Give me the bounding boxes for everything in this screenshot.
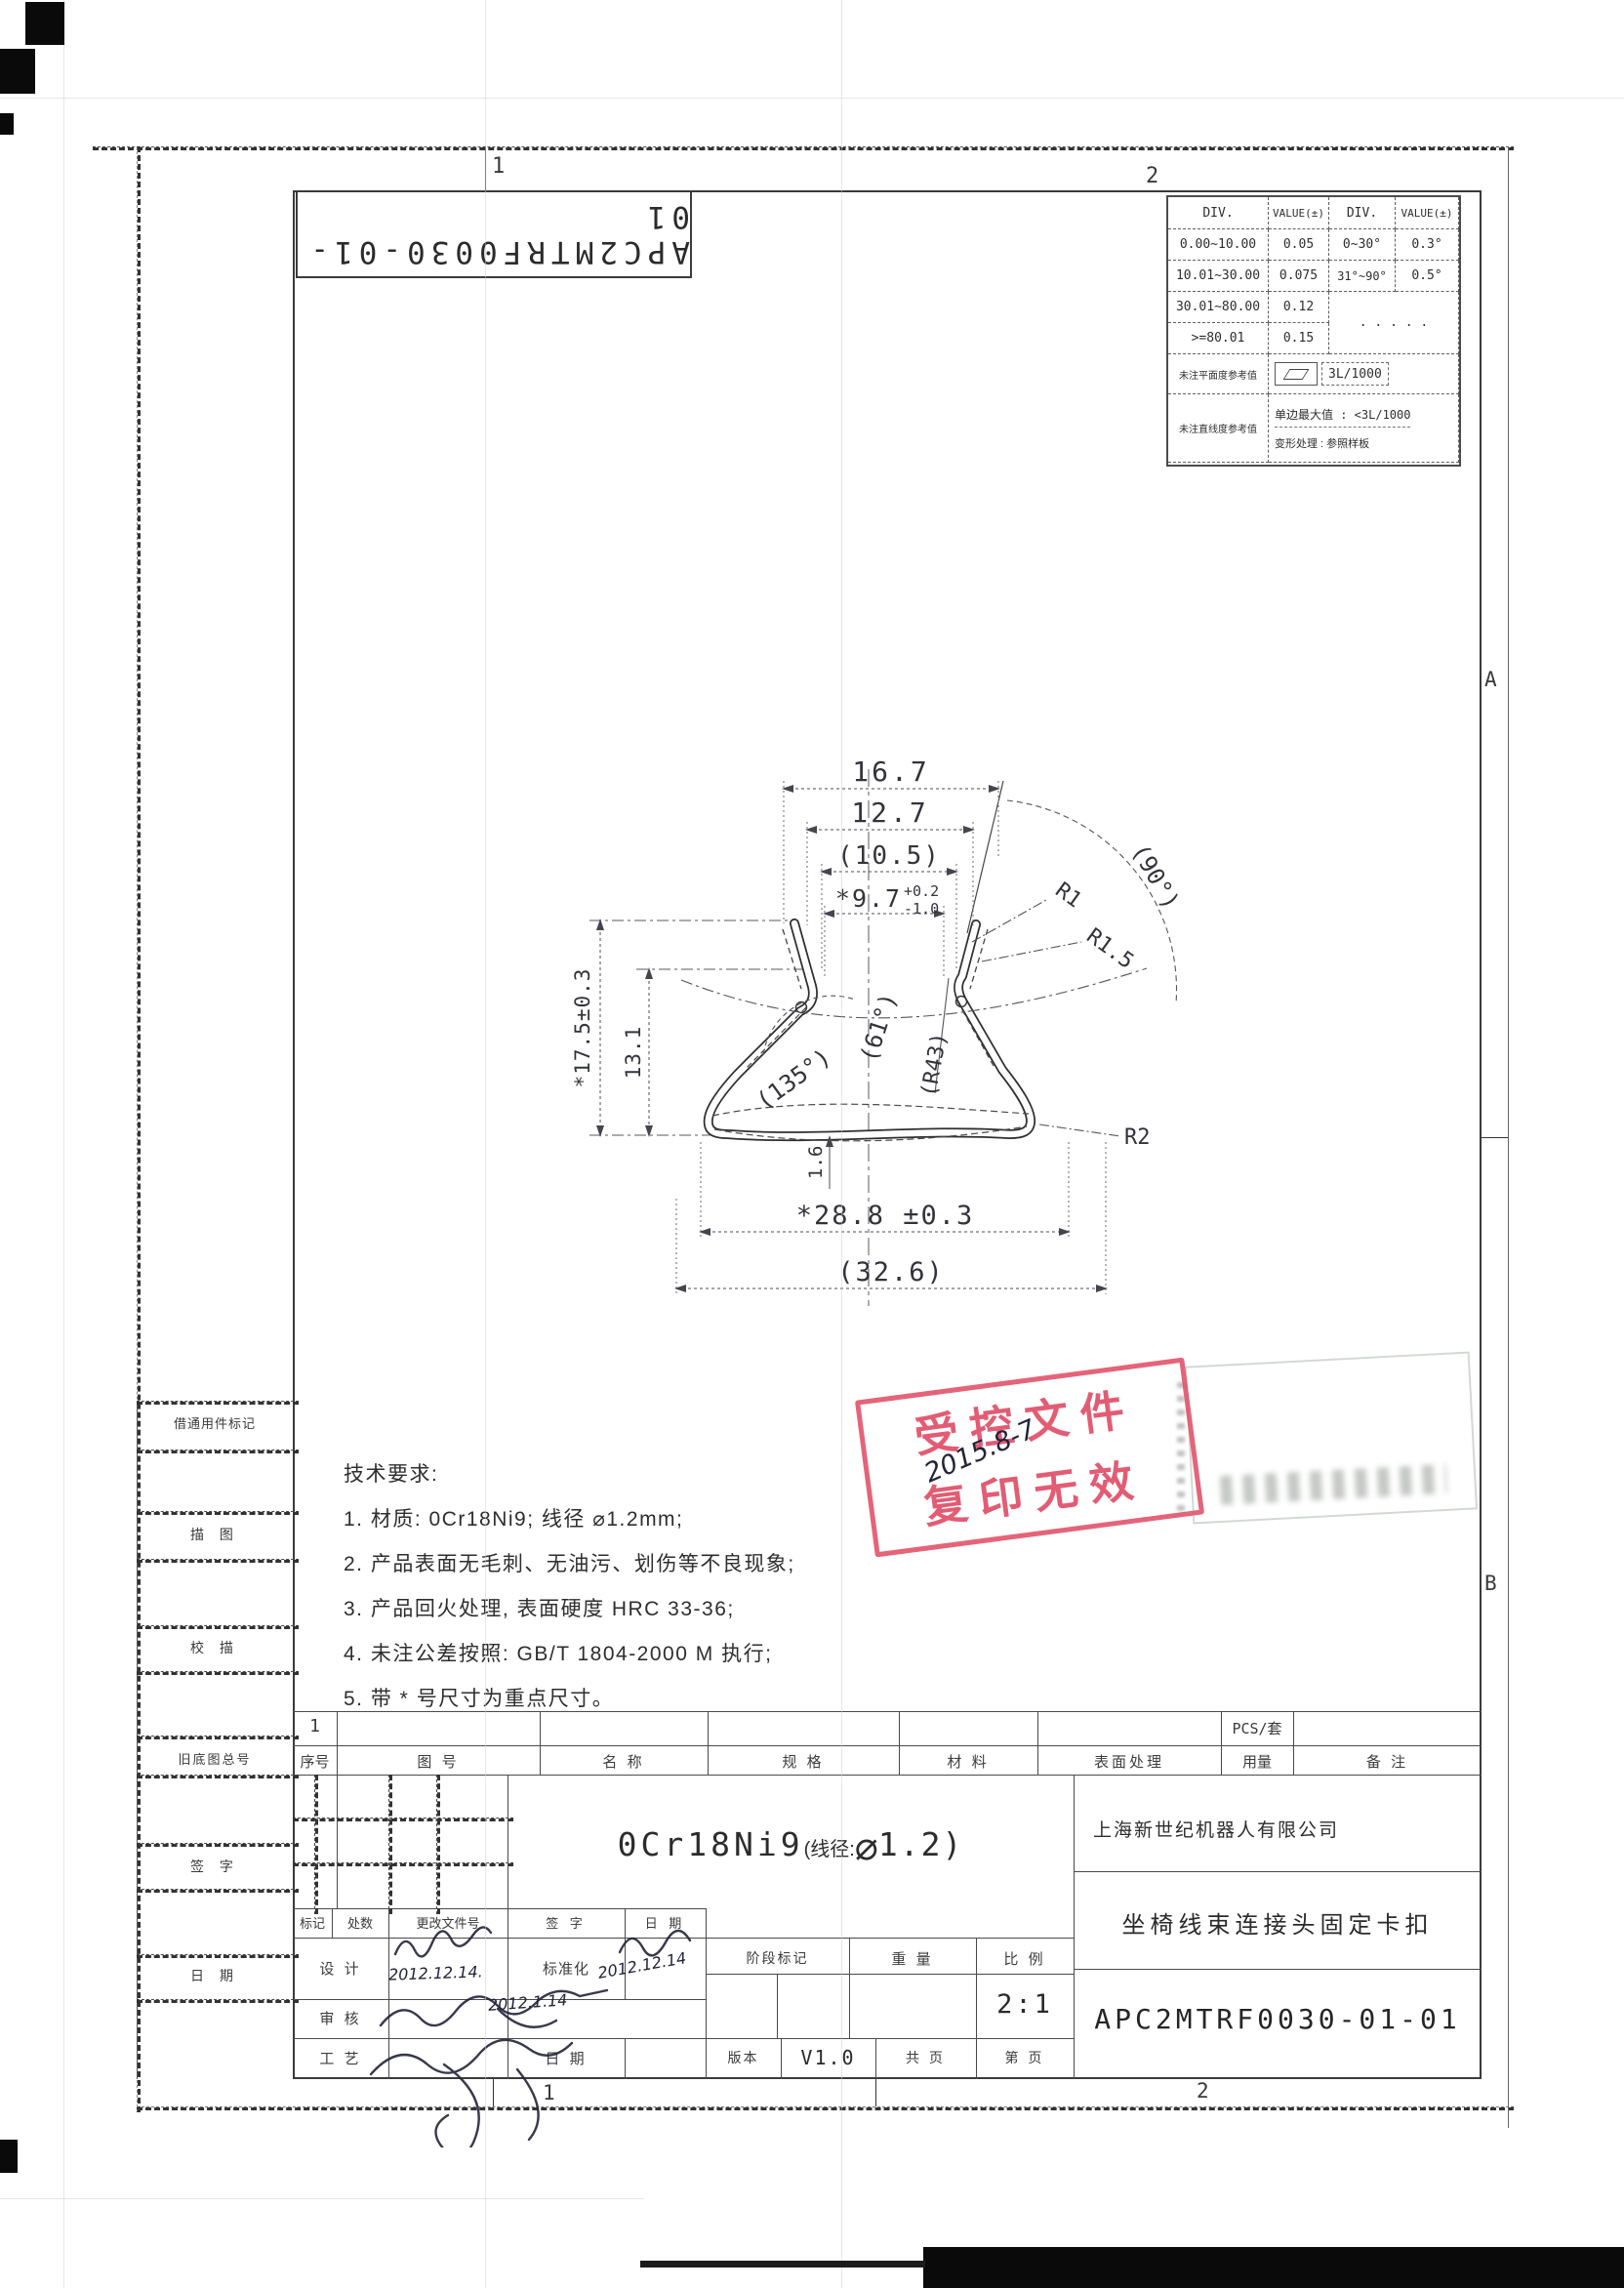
drawing-number: APC2MTRF0030-01-01 bbox=[1074, 2003, 1482, 2035]
tb-line bbox=[293, 1818, 513, 1821]
tol-cell: 0.00~10.00 bbox=[1168, 229, 1269, 261]
dim-9-7-tol-lower: -1.0 bbox=[904, 900, 939, 918]
left-margin-line bbox=[137, 1954, 299, 1958]
dim-12-7: 12.7 bbox=[851, 797, 928, 829]
part-name: 坐椅线束连接头固定卡扣 bbox=[1074, 1905, 1482, 1940]
left-margin-line bbox=[137, 1999, 299, 2003]
left-margin-line bbox=[137, 1625, 299, 1629]
straightness-line1: 单边最大值 : <3L/1000 bbox=[1275, 406, 1410, 428]
tech-item: 5. 带 * 号尺寸为重点尺寸。 bbox=[344, 1677, 795, 1722]
margin-label-tracing: 描 图 bbox=[137, 1525, 293, 1544]
stage-mark-label: 阶段标记 bbox=[706, 1948, 849, 1968]
zone-tick bbox=[1482, 1137, 1508, 1138]
tb-line bbox=[293, 1745, 1482, 1746]
zone-label-top-2: 2 bbox=[1146, 164, 1158, 188]
straightness-values: 单边最大值 : <3L/1000 变形处理 : 参照样板 bbox=[1269, 394, 1459, 463]
handwritten-signatures bbox=[351, 1894, 722, 2147]
tech-item: 4. 未注公差按照: GB/T 1804-2000 M 执行; bbox=[344, 1632, 795, 1677]
company-name: 上海新世纪机器人有限公司 bbox=[1093, 1816, 1339, 1842]
signature-process-flourish bbox=[436, 2064, 479, 2147]
tol-cell: 10.01~30.00 bbox=[1168, 261, 1269, 292]
fold-line bbox=[0, 98, 1624, 99]
ghost-stamp-smudge bbox=[1220, 1464, 1447, 1505]
tb-header-surface: 表面处理 bbox=[1037, 1751, 1221, 1772]
pages-total-label: 共 页 bbox=[875, 2048, 976, 2067]
tb-header-seq: 序号 bbox=[293, 1751, 337, 1772]
tb-line bbox=[293, 1775, 1482, 1776]
tb-header-spec: 规 格 bbox=[708, 1751, 899, 1772]
tol-cell: >=80.01 bbox=[1168, 323, 1269, 354]
tolerance-table: DIV. VALUE(±) DIV. VALUE(±) 0.00~10.00 0… bbox=[1166, 195, 1461, 467]
wire-phantom-shoulder-right bbox=[957, 1001, 994, 1066]
margin-label-signature: 签 字 bbox=[137, 1857, 293, 1876]
tech-item: 3. 产品回火处理, 表面硬度 HRC 33-36; bbox=[344, 1587, 795, 1632]
flatness-icon bbox=[1283, 369, 1310, 380]
radius-r1-5: R1.5 bbox=[1081, 924, 1138, 974]
scan-artifact-blob bbox=[0, 49, 35, 94]
dim-16-7: 16.7 bbox=[852, 756, 929, 788]
tol-cell: 0.05 bbox=[1269, 229, 1329, 261]
r2-leader bbox=[1039, 1124, 1120, 1136]
ghost-stamp bbox=[1185, 1351, 1478, 1524]
flatness-value-box: 3L/1000 bbox=[1321, 362, 1389, 386]
scan-artifact-blob bbox=[0, 2140, 18, 2173]
tol-cell: 0.15 bbox=[1269, 323, 1329, 354]
r15-leader bbox=[982, 942, 1081, 961]
dim-28-8: *28.8 ±0.3 bbox=[796, 1201, 975, 1231]
left-margin-line bbox=[137, 1671, 299, 1675]
flatness-label: 未注平面度参考值 bbox=[1168, 354, 1269, 394]
tol-cell-merged: . . . . . bbox=[1329, 292, 1459, 354]
zone-label-right-b: B bbox=[1484, 1572, 1497, 1595]
angle-90-arc bbox=[1007, 800, 1177, 1003]
dim-17-5: *17.5±0.3 bbox=[571, 968, 594, 1088]
arc-r43: (R43) bbox=[917, 1031, 953, 1099]
rev-mark: 标记 bbox=[293, 1913, 332, 1932]
left-margin-line bbox=[137, 1450, 299, 1453]
zone-label-top-1: 1 bbox=[492, 154, 505, 179]
scale-label: 比 例 bbox=[976, 1948, 1074, 1969]
fold-line bbox=[63, 0, 64, 2288]
left-margin-line bbox=[137, 1889, 299, 1893]
arc-sweep-r43 bbox=[681, 968, 1147, 1018]
r1-leader bbox=[972, 900, 1046, 942]
diameter-symbol: ⌀ bbox=[855, 1825, 878, 1868]
zone-label-bottom-2: 2 bbox=[1197, 2079, 1209, 2103]
version-value: V1.0 bbox=[781, 2046, 875, 2069]
tb-row1-qty: 1 bbox=[293, 1716, 337, 1736]
tol-header: VALUE(±) bbox=[1396, 197, 1459, 229]
page-no-label: 第 页 bbox=[976, 2048, 1074, 2067]
scanned-drawing-sheet: 1 2 A B 1 2 APC2MTRF0030-01-01 DIV. VALU… bbox=[0, 0, 1624, 2288]
left-margin-line bbox=[137, 1775, 299, 1778]
fold-line bbox=[841, 0, 842, 2288]
scan-artifact-bottom-line bbox=[640, 2261, 925, 2268]
part-drawing: 16.7 12.7 (10.5) *9.7 +0.2 -1.0 *17.5±0.… bbox=[547, 742, 1210, 1347]
tb-line bbox=[293, 1862, 513, 1866]
material-wire-dia: 1.2) bbox=[878, 1825, 963, 1863]
fold-line bbox=[485, 0, 486, 2288]
margin-label-check-tracing: 校 描 bbox=[137, 1638, 293, 1657]
tol-cell: 0.12 bbox=[1269, 292, 1329, 323]
left-margin-line bbox=[137, 1401, 299, 1405]
dim-32-6: (32.6) bbox=[837, 1257, 945, 1287]
handwritten-date-design: 2012.12.14. bbox=[388, 1962, 483, 1983]
doc-number-box: APC2MTRF0030-01-01 bbox=[296, 192, 692, 278]
tech-title: 技术要求: bbox=[344, 1452, 795, 1497]
scan-artifact-blob bbox=[25, 2, 64, 45]
tb-line bbox=[706, 1974, 1074, 1975]
tb-line bbox=[337, 1711, 338, 1908]
left-margin-line bbox=[137, 1736, 299, 1739]
doc-number-upside-down: APC2MTRF0030-01-01 bbox=[298, 199, 690, 269]
tb-header-usage: 用量 bbox=[1221, 1751, 1293, 1772]
scale-value: 2:1 bbox=[976, 1989, 1074, 2020]
tol-header: DIV. bbox=[1168, 197, 1269, 229]
left-margin-line bbox=[137, 1843, 299, 1847]
tb-line bbox=[1074, 1871, 1482, 1872]
tb-line bbox=[293, 1711, 1482, 1712]
dim-10-5: (10.5) bbox=[837, 841, 941, 871]
tol-cell: 0.3° bbox=[1396, 229, 1459, 261]
straightness-line2: 变形处理 : 参照样板 bbox=[1275, 435, 1369, 451]
angle-61: (61°) bbox=[855, 990, 903, 1065]
sheet-edge-right bbox=[1508, 146, 1509, 2128]
tb-line bbox=[314, 1775, 318, 1914]
margin-label-old-master: 旧底图总号 bbox=[137, 1749, 293, 1768]
tol-cell: 0.075 bbox=[1269, 261, 1329, 292]
angle-90: (90°) bbox=[1126, 839, 1185, 915]
tb-header-drawing-no: 图 号 bbox=[337, 1751, 540, 1772]
technical-requirements: 技术要求: 1. 材质: 0Cr18Ni9; 线径 ⌀1.2mm; 2. 产品表… bbox=[344, 1452, 795, 1722]
tol-cell: 0.5° bbox=[1396, 261, 1459, 292]
signature-process-flourish2 bbox=[517, 2069, 539, 2140]
dim-13: 13.1 bbox=[622, 1026, 645, 1080]
tech-item: 1. 材质: 0Cr18Ni9; 线径 ⌀1.2mm; bbox=[344, 1497, 795, 1542]
scan-artifact-bottom-bar bbox=[923, 2247, 1624, 2288]
sheet-edge-bottom bbox=[137, 2106, 1514, 2110]
flatness-value: 3L/1000 bbox=[1269, 354, 1459, 394]
fold-line bbox=[0, 2198, 644, 2199]
scan-artifact-blob bbox=[0, 113, 14, 135]
material-wire-label: (线径: bbox=[804, 1839, 855, 1860]
tol-cell: 0~30° bbox=[1329, 229, 1396, 261]
signature-process bbox=[371, 2040, 572, 2074]
dim-9-7-tol-upper: +0.2 bbox=[904, 882, 939, 900]
dim-9-7: *9.7 bbox=[835, 884, 902, 913]
zone-tick bbox=[875, 2079, 876, 2106]
tb-line bbox=[1074, 1969, 1482, 1970]
tol-cell: 31°~90° bbox=[1329, 261, 1396, 292]
zone-label-right-a: A bbox=[1484, 668, 1497, 691]
tol-cell: 30.01~80.00 bbox=[1168, 292, 1269, 323]
radius-r1: R1 bbox=[1050, 878, 1085, 914]
tb-header-material: 材 料 bbox=[899, 1751, 1037, 1772]
tb-material-spec: 0Cr18Ni9(线径:⌀1.2) bbox=[507, 1820, 1074, 1865]
margin-label-date: 日 期 bbox=[137, 1966, 293, 1985]
left-margin-line bbox=[137, 1511, 299, 1515]
flatness-symbol-box bbox=[1275, 362, 1318, 386]
tb-header-remark: 备 注 bbox=[1293, 1751, 1482, 1772]
tech-item: 2. 产品表面无毛刺、无油污、划伤等不良现象; bbox=[344, 1542, 795, 1587]
tb-pcs-per-set: PCS/套 bbox=[1221, 1718, 1293, 1738]
left-margin-line bbox=[137, 1559, 299, 1563]
radius-r2: R2 bbox=[1124, 1125, 1151, 1150]
straightness-label: 未注直线度参考值 bbox=[1168, 394, 1269, 463]
tb-line bbox=[777, 1974, 778, 2038]
tb-header-name: 名 称 bbox=[540, 1751, 708, 1772]
material-grade: 0Cr18Ni9 bbox=[618, 1825, 804, 1863]
tol-header: VALUE(±) bbox=[1269, 197, 1329, 229]
sheet-edge-top bbox=[93, 146, 1514, 150]
dim-1-6: 1.6 bbox=[805, 1146, 827, 1179]
margin-label-borrowed: 借通用件标记 bbox=[137, 1413, 293, 1432]
signature-design bbox=[395, 1927, 491, 1956]
tol-header: DIV. bbox=[1329, 197, 1396, 229]
weight-label: 重 量 bbox=[849, 1948, 976, 1969]
